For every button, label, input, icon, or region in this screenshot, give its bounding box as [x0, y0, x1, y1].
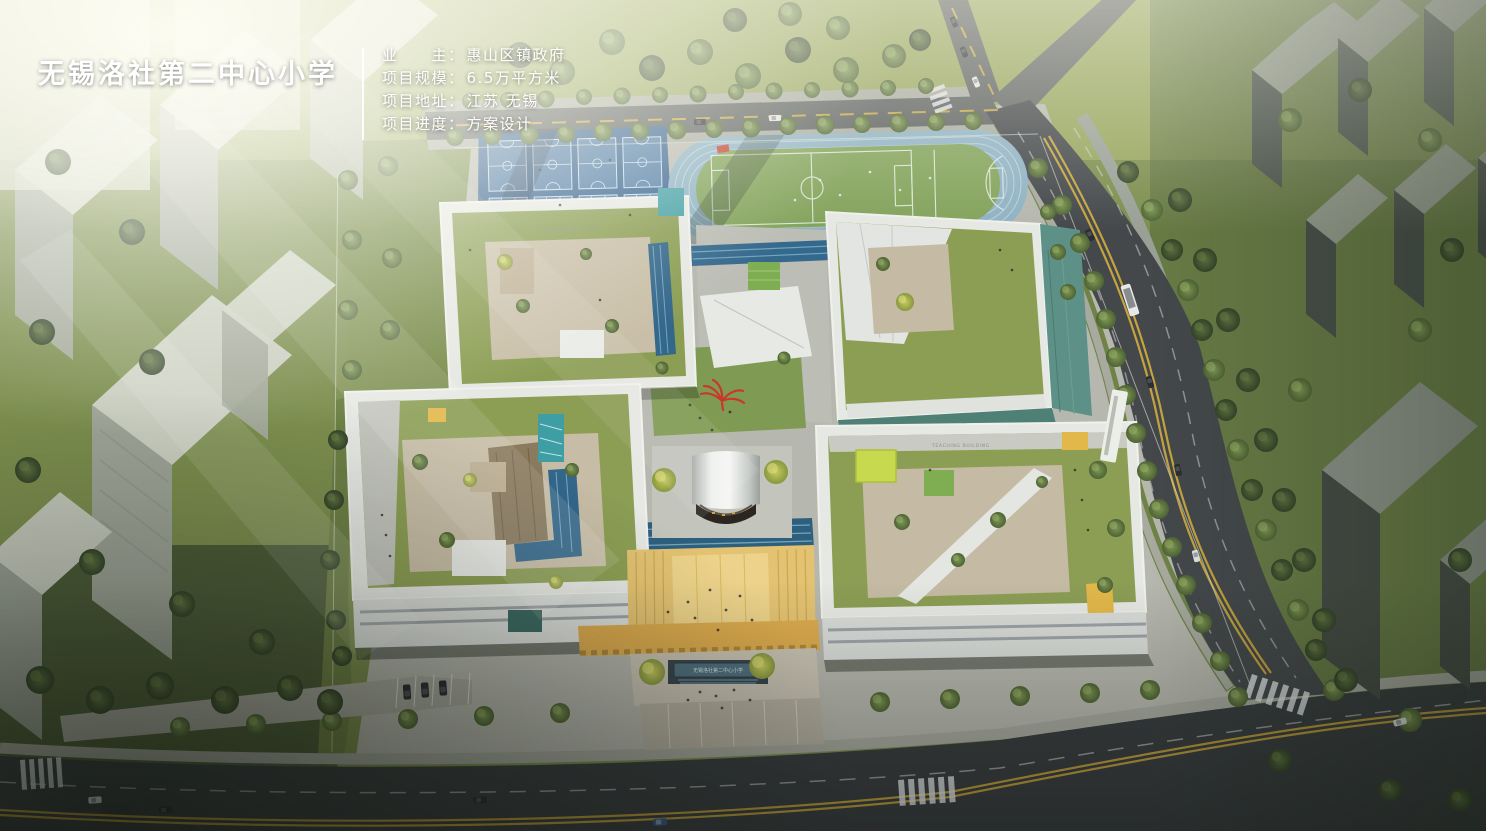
field-status: 项目进度：方案设计 — [382, 113, 566, 135]
aerial-render-page: TEACHING BUILDING TEACHING BUILDING — [0, 0, 1486, 831]
field-location: 项目地址：江苏 无锡 — [382, 90, 566, 112]
project-fields: 业 主：惠山区镇政府 项目规模：6.5万平方米 项目地址：江苏 无锡 项目进度：… — [382, 44, 566, 135]
field-scale: 项目规模：6.5万平方米 — [382, 67, 566, 89]
page-title: 无锡洛社第二中心小学 — [38, 52, 338, 91]
project-info-card: 无锡洛社第二中心小学 业 主：惠山区镇政府 项目规模：6.5万平方米 项目地址：… — [38, 42, 566, 140]
field-owner: 业 主：惠山区镇政府 — [382, 44, 566, 66]
divider-line — [362, 48, 364, 140]
